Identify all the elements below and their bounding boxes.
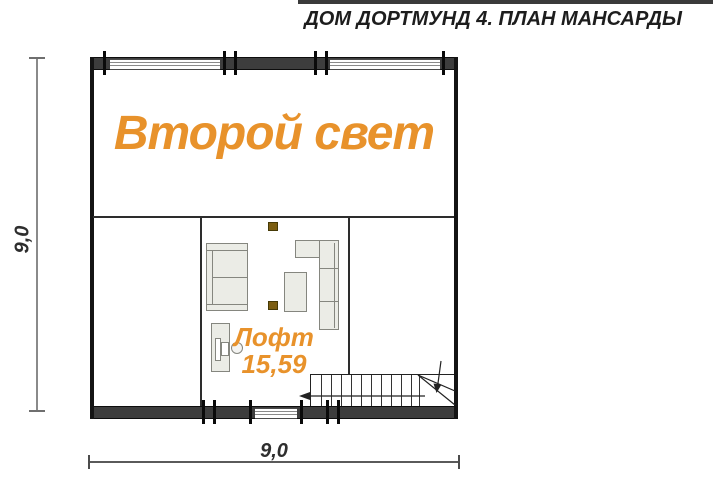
column-post xyxy=(268,222,278,231)
corner-sofa xyxy=(319,240,339,330)
sofa xyxy=(206,243,248,311)
room-label-loft: Лофт 15,59 xyxy=(200,324,348,378)
corner-sofa-back-line xyxy=(334,243,335,328)
loft-area-value: 15,59 xyxy=(200,351,348,378)
stair-entry-line xyxy=(438,361,442,387)
column-post xyxy=(268,301,278,310)
floor-plan-sheet: ДОМ ДОРТМУНД 4. ПЛАН МАНСАРДЫ xyxy=(0,0,713,502)
stairs-annotation-overlay xyxy=(0,0,713,502)
dimension-cap xyxy=(29,57,45,59)
corner-sofa-arm xyxy=(295,240,320,258)
dimension-label-left: 9,0 xyxy=(12,210,35,270)
dimension-cap xyxy=(29,410,45,412)
corner-sofa-cushion-line xyxy=(320,268,338,269)
room-label-second-light: Второй свет xyxy=(92,106,456,161)
sofa-armrest-line xyxy=(207,250,247,251)
sofa-armrest-line xyxy=(207,304,247,305)
loft-name: Лофт xyxy=(200,324,348,351)
coffee-table xyxy=(284,272,307,312)
sofa-cushion-line xyxy=(212,277,247,278)
corner-sofa-cushion-line xyxy=(320,301,338,302)
dimension-line-left xyxy=(36,58,38,412)
dimension-label-bottom: 9,0 xyxy=(88,440,460,463)
stair-arrowhead-left xyxy=(299,392,310,400)
